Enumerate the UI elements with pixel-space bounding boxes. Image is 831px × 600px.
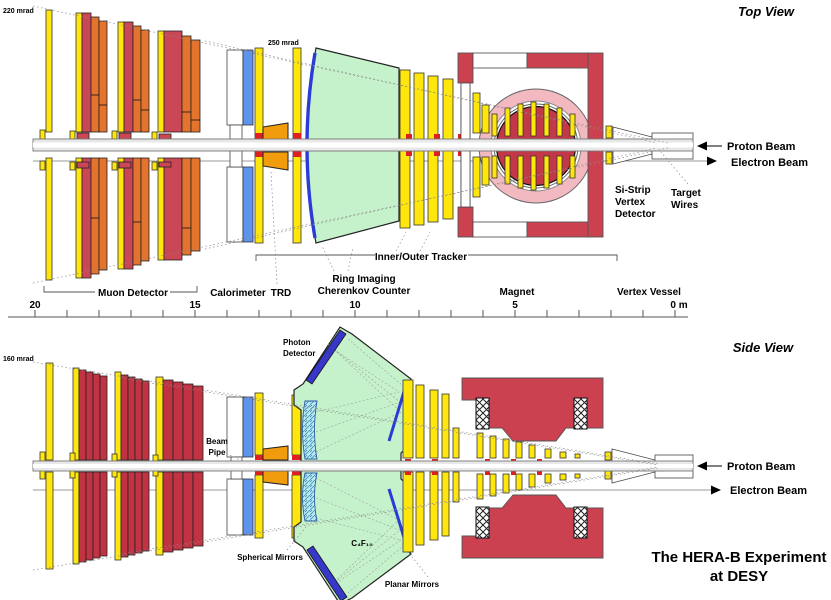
label-sistrip-2: Vertex [615,197,645,208]
angle-label-220: 220 mrad [3,8,34,15]
electron-beam-label-top: Electron Beam [731,157,808,169]
label-vertex-vessel: Vertex Vessel [617,287,681,298]
label-tracker: Inner/Outer Tracker [375,252,467,263]
magnet-coil [574,507,587,538]
caption-line1: The HERA-B Experiment [651,549,826,566]
label-spherical-mirrors: Spherical Mirrors [237,553,303,562]
label-photon-detector-1: Photon [283,338,311,347]
label-target-1: Target [671,188,701,199]
hera-b-diagram: 220 mrad 250 mrad Top View Muon Detector… [0,0,831,600]
diagram-canvas: 220 mrad 250 mrad Top View Muon Detector… [0,0,831,600]
scale-tick-20: 20 [29,300,41,311]
label-muon-detector: Muon Detector [98,288,168,299]
magnet-coil [574,398,587,429]
scale-ticks [35,310,675,317]
top-view-title: Top View [738,4,795,19]
spherical-mirror-bottom [303,473,318,521]
electron-beam-arrow-top [707,157,717,166]
label-calorimeter: Calorimeter [210,288,266,299]
angle-label-160: 160 mrad [3,356,34,363]
electron-beam-arrow-side [711,486,721,495]
label-magnet: Magnet [500,287,536,298]
label-sistrip-3: Detector [615,209,656,220]
top-view: 220 mrad 250 mrad Top View Muon Detector… [3,4,808,299]
proton-beam-label-side: Proton Beam [727,461,796,473]
magnet-coil [476,507,489,538]
electron-beam-label-side: Electron Beam [730,485,807,497]
proton-beam-arrow-side [697,462,707,471]
label-photon-detector-2: Detector [283,349,315,358]
label-rich-line2: Cherenkov Counter [318,286,411,297]
vds-plane-top [606,152,612,164]
scale-tick-0m: 0 m [670,300,687,311]
scale-tick-15: 15 [189,300,201,311]
proton-beam-label-top: Proton Beam [727,141,796,153]
scale-tick-5: 5 [512,300,518,311]
label-beam-pipe-2: Pipe [209,448,226,457]
label-sistrip-1: Si-Strip [615,185,651,196]
label-beam-pipe-1: Beam [206,437,228,446]
label-trd: TRD [271,288,292,299]
magnet-coil [476,398,489,429]
planar-mirrors-leader [409,553,428,577]
angle-label-250: 250 mrad [268,40,299,47]
scale-axis: 20 15 10 5 0 m [8,300,688,317]
proton-beam-arrow-top [697,142,707,151]
label-rich-line1: Ring Imaging [332,274,395,285]
label-radiator-c4f10: C₄F₁₀ [351,539,373,548]
caption-line2: at DESY [710,568,768,585]
label-target-2: Wires [671,200,699,211]
label-planar-mirrors: Planar Mirrors [385,580,440,589]
trd-leader [271,172,277,284]
scale-tick-10: 10 [349,300,361,311]
side-view-title: Side View [733,340,794,355]
side-view: 160 mrad Side View Photon Detector Beam … [3,327,827,600]
